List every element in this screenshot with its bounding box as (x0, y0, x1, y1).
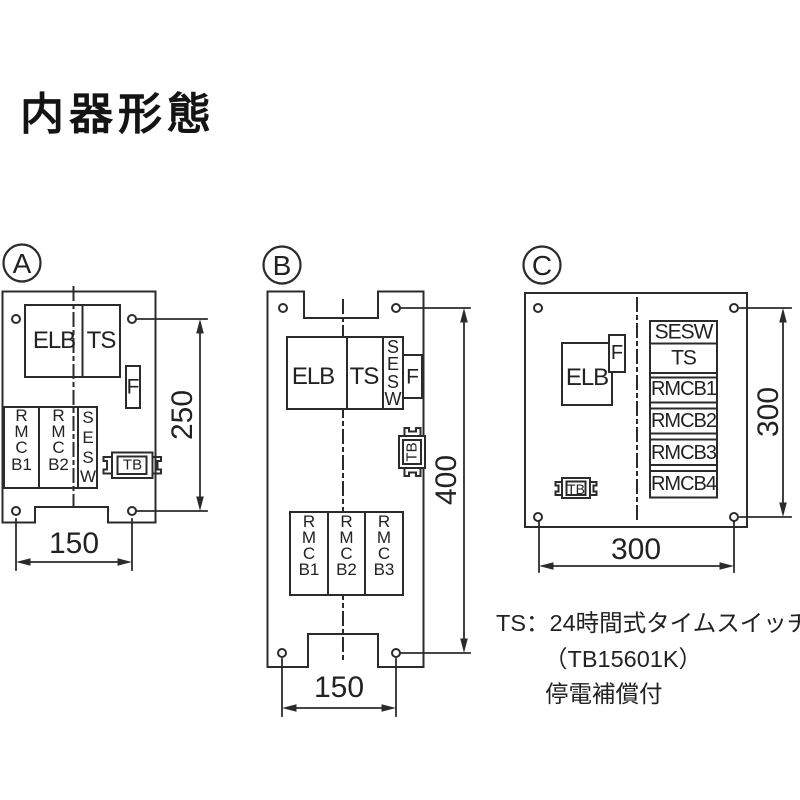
arrowhead-up-icon (196, 319, 204, 334)
panel-c-width-dimension: 300 (611, 535, 661, 565)
panel-b-rmcb2-label: RMCB2 (336, 514, 358, 578)
panel-a-rmcb1-label: RMCB1 (11, 408, 33, 473)
drawing-sheet: 内器形態 A ELB TS F RMCB1 RMCB2 SESW TB 250 … (0, 0, 800, 800)
screw-hole (12, 507, 20, 515)
screw-hole (534, 513, 542, 521)
panel-a-ts-label: TS (87, 329, 116, 353)
arrowhead-up-icon (460, 308, 468, 323)
panel-b-elb-label: ELB (292, 365, 334, 389)
panel-b-tb-label: TB (405, 442, 420, 461)
arrowhead-left-icon (539, 562, 554, 570)
panel-c-label: C (532, 252, 552, 280)
screw-hole (730, 513, 738, 521)
screw-hole (128, 507, 136, 515)
panel-c-height-dimension: 300 (754, 387, 784, 437)
panel-b-ts-label: TS (350, 365, 379, 389)
note-ts-line3: 停電補償付 (545, 675, 663, 709)
arrowhead-up-icon (779, 308, 787, 323)
panel-c-f-label: F (611, 343, 623, 363)
panel-b-tb-top-tab (405, 428, 421, 436)
arrowhead-left-icon (282, 704, 297, 712)
screw-hole (392, 649, 400, 657)
panel-a-rmcb2-label: RMCB2 (48, 408, 70, 473)
panel-b-rmcb1-label: RMCB1 (298, 514, 320, 578)
note-ts-line1: TS：24時間式タイムスイッチ (496, 604, 800, 638)
screw-hole (730, 304, 738, 312)
screw-hole (128, 315, 136, 323)
screw-hole (392, 304, 400, 312)
screw-hole (279, 304, 287, 312)
panel-b-height-dimension: 400 (432, 455, 462, 505)
panel-c-tb-label: TB (567, 482, 585, 496)
panel-b-width-dimension: 150 (314, 673, 364, 703)
screw-hole (12, 315, 20, 323)
panel-c-elb-label: ELB (566, 366, 608, 390)
arrowhead-left-icon (16, 558, 31, 566)
page-title: 内器形態 (20, 78, 216, 142)
panel-a-tb-label: TB (123, 458, 142, 473)
panel-a-elb-label: ELB (33, 329, 75, 353)
panel-c-sesw-label: SESW (655, 322, 713, 343)
panel-b-sesw-label: SESW (382, 339, 404, 409)
panel-a-tb-left-tab (104, 457, 113, 474)
panel-c-rmcb4-label: RMCB4 (651, 474, 716, 494)
panel-c-rmcb1-label: RMCB1 (651, 379, 716, 399)
panel-b-rmcb3-label: RMCB3 (373, 514, 395, 578)
arrowhead-right-icon (382, 704, 397, 712)
panel-c-rmcb2-label: RMCB2 (651, 411, 716, 431)
screw-hole (534, 304, 542, 312)
arrowhead-down-icon (460, 639, 468, 654)
panel-a-label: A (13, 250, 32, 278)
panel-a-width-dimension: 150 (49, 529, 99, 559)
arrowhead-right-icon (118, 558, 133, 566)
arrowhead-down-icon (779, 503, 787, 518)
panel-b-tb-bottom-tab (405, 468, 421, 476)
note-ts-line2: （TB15601K） (544, 640, 702, 674)
panel-c-rmcb3-label: RMCB3 (651, 443, 716, 463)
panel-a-sesw-label: SESW (77, 408, 99, 487)
panel-b-label: B (273, 252, 292, 280)
screw-hole (278, 649, 286, 657)
panel-a-f-label: F (127, 377, 140, 398)
panel-b-f-label: F (406, 366, 419, 387)
arrowhead-right-icon (720, 562, 735, 570)
panel-a-height-dimension: 250 (168, 390, 198, 440)
arrowhead-down-icon (196, 497, 204, 512)
panel-c-ts-label: TS (671, 348, 696, 369)
panel-a-tb-right-tab (153, 457, 162, 474)
